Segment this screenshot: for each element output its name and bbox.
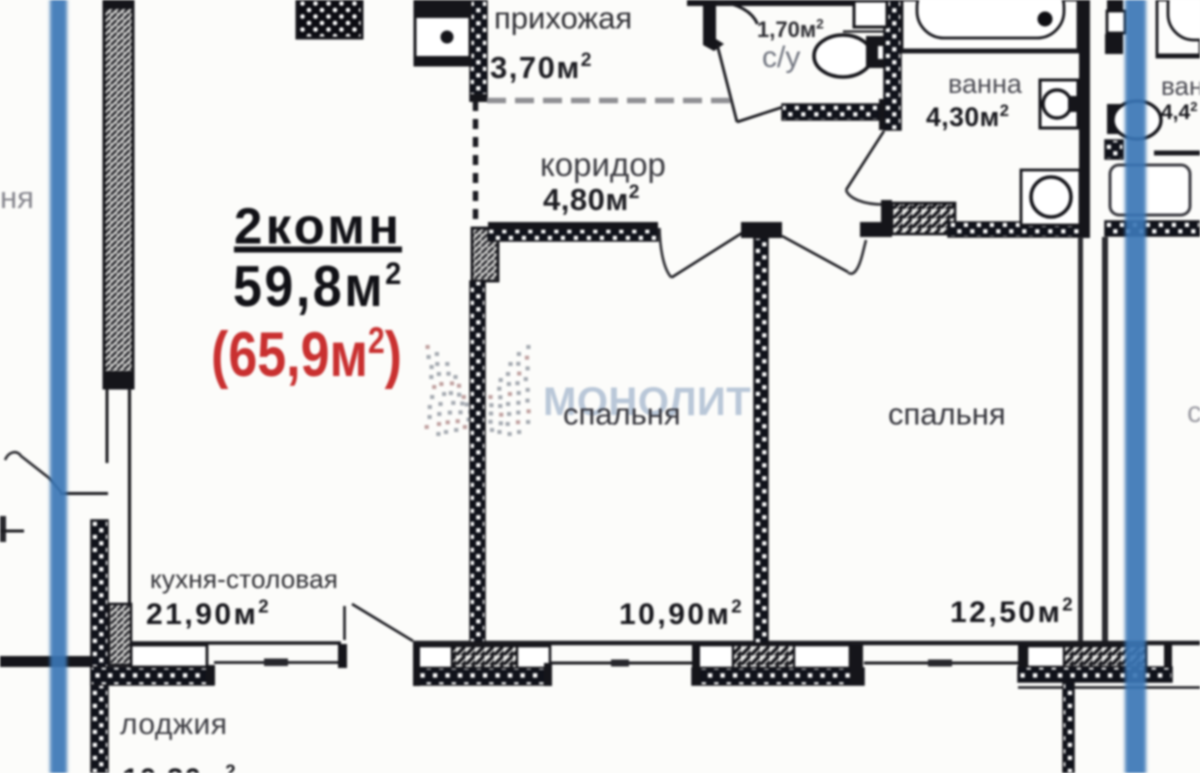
- svg-text:ванна: ванна: [948, 69, 1023, 99]
- svg-text:21,90м2: 21,90м2: [146, 596, 271, 631]
- svg-text:4,80м2: 4,80м2: [543, 182, 640, 217]
- svg-text:59,8м2: 59,8м2: [233, 255, 404, 319]
- svg-text:спальня: спальня: [888, 397, 1006, 432]
- svg-text:12,50м2: 12,50м2: [950, 594, 1075, 629]
- svg-text:ван: ван: [1161, 71, 1200, 101]
- svg-text:1,70м2: 1,70м2: [757, 17, 824, 42]
- svg-text:3,70м2: 3,70м2: [490, 50, 593, 85]
- svg-text:ня: ня: [0, 180, 34, 215]
- svg-text:10,90м2: 10,90м2: [619, 596, 744, 631]
- svg-text:прихожая: прихожая: [494, 1, 632, 36]
- svg-text:10,20м2: 10,20м2: [122, 761, 237, 773]
- svg-text:кухня-столовая: кухня-столовая: [150, 564, 338, 594]
- svg-text:сп: сп: [1187, 396, 1200, 429]
- svg-text:лоджия: лоджия: [120, 708, 227, 741]
- svg-text:2комн: 2комн: [234, 198, 402, 255]
- svg-text:с/у: с/у: [762, 41, 800, 74]
- svg-text:4,30м2: 4,30м2: [926, 102, 1009, 132]
- svg-text:спальня: спальня: [563, 397, 681, 432]
- svg-text:коридор: коридор: [540, 146, 666, 183]
